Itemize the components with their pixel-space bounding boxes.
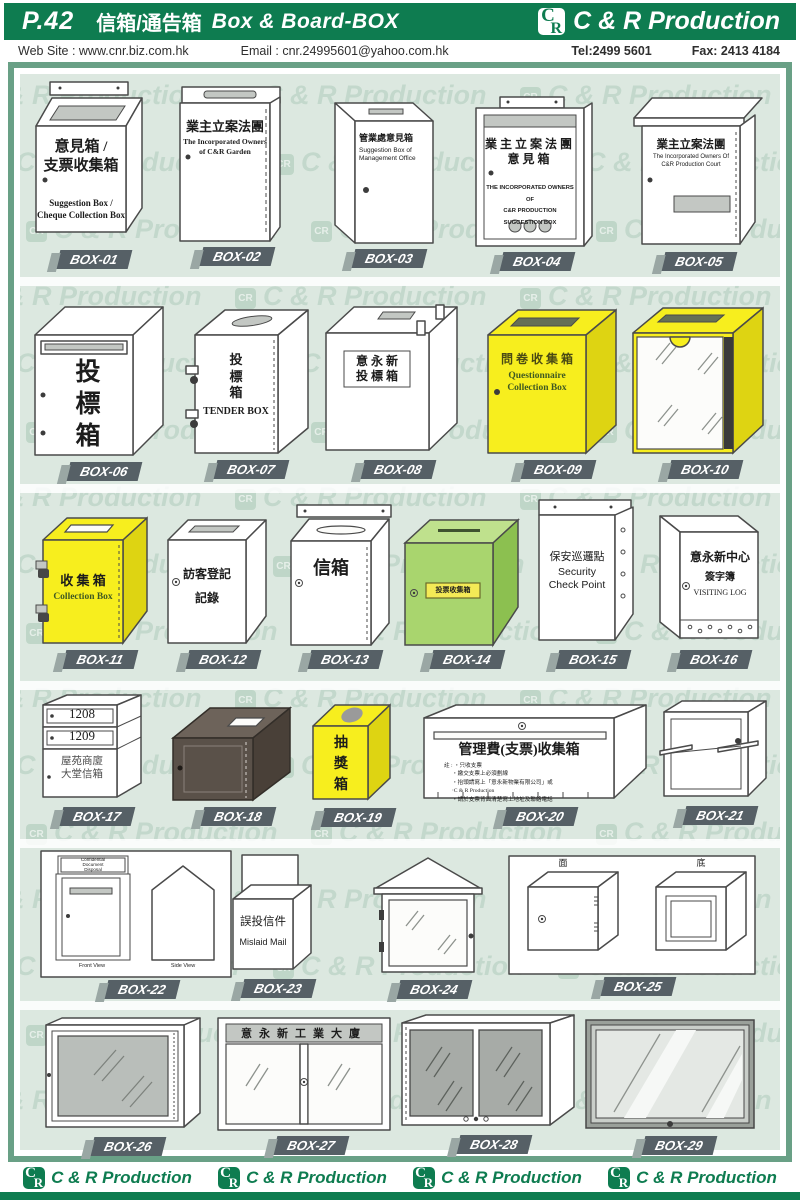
box-03-text-en: Suggestion Box ofManagement Office: [359, 147, 431, 164]
cr-logo-icon: CR: [218, 1167, 240, 1189]
box-02-tag: BOX-02: [198, 247, 275, 266]
product-box-15: 保安巡邏點 SecurityCheck Point BOX-15: [533, 498, 640, 648]
box-22-caption-front: Front View: [60, 963, 124, 970]
brand-name: C & R Production: [573, 7, 780, 36]
box-23-text-zh: 誤投信件: [233, 915, 293, 930]
box-18-illustration: [168, 700, 295, 805]
product-box-16: 意永新中心 簽字簿 VISITING LOG BOX-16: [652, 510, 764, 648]
box-27-header-text: 意永新工業大廈: [226, 1027, 382, 1041]
product-box-24: BOX-24: [372, 848, 484, 978]
product-box-03: 管業處意見箱 Suggestion Box ofManagement Offic…: [325, 95, 440, 247]
box-15-text-zh: 保安巡邏點: [541, 550, 613, 564]
box-20-title: 管理費(支票)收集箱: [428, 742, 610, 760]
box-24-tag: BOX-24: [396, 980, 473, 999]
box-04-tag: BOX-04: [498, 252, 575, 271]
box-07-text-zh: 投標箱: [218, 352, 254, 402]
bottom-green-bar: [0, 1192, 800, 1200]
box-19-tag: BOX-19: [320, 808, 397, 827]
box-21-tag: BOX-21: [682, 806, 759, 825]
product-box-20: 管理費(支票)收集箱 註 : ‧只收支票‧繳交支票上必須劃線 ‧抬頭請寫上「意永…: [418, 700, 650, 805]
box-03-tag: BOX-03: [350, 249, 427, 268]
box-29-tag: BOX-29: [641, 1136, 718, 1155]
footer-brand-3: CR C & R Production: [413, 1167, 582, 1189]
box-17-text-zh: 屋苑商廈大堂信箱: [49, 755, 115, 782]
box-17-tag: BOX-17: [59, 807, 136, 826]
box-11-text-zh: 收 集 箱: [45, 573, 121, 590]
catalog-page: P.42 信箱/通告箱 Box & Board-BOX CR C & R Pro…: [0, 0, 800, 1200]
box-27-tag: BOX-27: [273, 1136, 350, 1155]
product-box-09: 問 卷 收 集 箱 QuestionnaireCollection Box BO…: [483, 300, 620, 458]
product-box-01: 意見箱 /支票收集箱 Suggestion Box /Cheque Collec…: [28, 80, 148, 248]
product-box-18: BOX-18: [168, 700, 295, 805]
row-divider: [20, 681, 780, 690]
product-box-07: 投標箱 TENDER BOX BOX-07: [180, 300, 310, 458]
box-02-text-zh: 業主立案法團: [182, 119, 268, 136]
product-box-21: BOX-21: [658, 696, 770, 804]
box-23-tag: BOX-23: [240, 979, 317, 998]
fax-text: Fax: 2413 4184: [692, 44, 780, 58]
product-box-08: 意 永 新投 標 箱 BOX-08: [318, 293, 465, 458]
box-09-text-zh: 問 卷 收 集 箱: [491, 352, 583, 367]
box-23-text-en: Mislaid Mail: [233, 937, 293, 949]
box-15-tag: BOX-15: [554, 650, 631, 669]
website-text: Web Site : www.cnr.biz.com.hk: [18, 44, 189, 58]
cr-logo-icon: CR: [23, 1167, 45, 1189]
title-chinese: 信箱/通告箱: [96, 7, 202, 36]
box-14-illustration: [400, 505, 522, 648]
box-24-illustration: [372, 848, 484, 978]
row-divider: [20, 1001, 780, 1010]
box-07-tag: BOX-07: [213, 460, 290, 479]
product-box-19: 抽獎箱 BOX-19: [308, 696, 396, 806]
product-box-28: BOX-28: [398, 1013, 578, 1133]
box-26-illustration: [38, 1013, 206, 1135]
box-02-text-en: The Incorporated Ownersof C&R Garden: [182, 137, 268, 156]
box-29-illustration: [584, 1016, 762, 1134]
box-28-illustration: [398, 1013, 578, 1133]
box-17-unit-2: 1209: [57, 728, 107, 745]
box-05-tag: BOX-05: [661, 252, 738, 271]
box-17-unit-1: 1208: [57, 706, 107, 723]
box-09-text-en: QuestionnaireCollection Box: [491, 370, 583, 394]
box-05-text-zh: 業主立案法團: [648, 138, 734, 153]
box-01-text-zh: 意見箱 /支票收集箱: [38, 138, 124, 176]
footer-brand-row: CR C & R Production CR C & R Production …: [0, 1164, 800, 1192]
cr-logo-icon: CR: [538, 8, 565, 35]
box-01-text-en: Suggestion Box /Cheque Collection Box: [36, 198, 126, 221]
contact-strip: Web Site : www.cnr.biz.com.hk Email : cn…: [4, 40, 796, 62]
box-04-text-zh: 業主立案法團意見箱: [484, 137, 576, 168]
product-box-02: 業主立案法團 The Incorporated Ownersof C&R Gar…: [168, 85, 293, 245]
box-19-text-zh: 抽獎箱: [326, 732, 356, 795]
footer-brand-4: CR C & R Production: [608, 1167, 777, 1189]
box-20-notes: 註 : ‧只收支票‧繳交支票上必須劃線 ‧抬頭請寫上「意永新物業有限公司」或‧C…: [444, 762, 604, 804]
cr-logo-icon: CR: [413, 1167, 435, 1189]
box-06-tag: BOX-06: [65, 462, 142, 481]
box-15-text-en: SecurityCheck Point: [541, 566, 613, 593]
box-22-tag: BOX-22: [104, 980, 181, 999]
product-box-26: BOX-26: [38, 1013, 206, 1135]
box-10-illustration: [628, 298, 770, 458]
box-16-text-en: VISITING LOG: [684, 588, 756, 598]
box-11-tag: BOX-11: [62, 650, 139, 669]
box-25-label-bottom: 底: [676, 858, 726, 870]
product-box-17: 1208 1209 屋苑商廈大堂信箱 BOX-17: [35, 693, 147, 805]
box-12-text-zh: 訪客登記記錄: [171, 562, 243, 610]
title-english: Box & Board-BOX: [212, 10, 399, 34]
product-box-05: 業主立案法團 The Incorporated Owners OfC&R Pro…: [622, 88, 764, 250]
box-25-illustration: [508, 855, 756, 975]
box-13-text-zh: 信箱: [295, 557, 367, 580]
box-16-text-zh1: 意永新中心: [684, 550, 756, 565]
box-22-header: ConfidentialDocumentDisposal: [61, 858, 125, 872]
box-28-tag: BOX-28: [456, 1135, 533, 1154]
box-16-text-zh2: 簽字簿: [684, 572, 756, 585]
box-03-illustration: [325, 95, 440, 247]
box-20-tag: BOX-20: [502, 807, 579, 826]
product-box-29: BOX-29: [584, 1016, 762, 1134]
product-box-04: 業主立案法團意見箱 THE INCORPORATED OWNERS OFC&R …: [468, 95, 593, 250]
box-25-tag: BOX-25: [600, 977, 677, 996]
product-box-13: 信箱 BOX-13: [283, 503, 395, 648]
product-box-22: ConfidentialDocumentDisposal Front View …: [40, 850, 232, 978]
tel-text: Tel:2499 5601: [571, 44, 651, 58]
row-divider: [20, 839, 780, 848]
box-21-illustration: [658, 696, 770, 804]
footer-brand-2: CR C & R Production: [218, 1167, 387, 1189]
box-03-text-zh: 管業處意見箱: [359, 133, 431, 145]
box-08-tag: BOX-08: [359, 460, 436, 479]
box-13-tag: BOX-13: [307, 650, 384, 669]
cr-logo-icon: CR: [608, 1167, 630, 1189]
product-box-10: BOX-10: [628, 298, 770, 458]
box-05-text-en: The Incorporated Owners OfC&R Production…: [648, 154, 734, 169]
box-06-text-zh: 投標箱: [70, 357, 106, 453]
box-07-text-en: TENDER BOX: [192, 406, 280, 419]
box-10-tag: BOX-10: [667, 460, 744, 479]
box-14-tag: BOX-14: [429, 650, 506, 669]
box-18-tag: BOX-18: [199, 807, 276, 826]
product-box-06: 投標箱 BOX-06: [30, 295, 165, 460]
box-22-caption-side: Side View: [152, 963, 214, 970]
product-box-25: 面 底 BOX-25: [508, 855, 756, 975]
box-08-plaque-text: 意 永 新投 標 箱: [344, 354, 410, 385]
product-box-27: 意永新工業大廈 BOX-27: [216, 1016, 394, 1134]
box-09-tag: BOX-09: [519, 460, 596, 479]
product-box-12: 訪客登記記錄 BOX-12: [163, 510, 270, 648]
product-box-23: 誤投信件 Mislaid Mail BOX-23: [228, 853, 316, 977]
row-divider: [20, 484, 780, 493]
product-box-14: 投票收集箱 BOX-14: [400, 505, 522, 648]
box-12-tag: BOX-12: [184, 650, 261, 669]
box-25-label-front: 面: [538, 858, 588, 870]
footer-brand-1: CR C & R Production: [23, 1167, 192, 1189]
box-14-plaque-text: 投票收集箱: [426, 586, 480, 595]
box-04-text-en: THE INCORPORATED OWNERS OFC&R PRODUCTION…: [484, 183, 576, 229]
page-number: P.42: [22, 7, 74, 36]
box-26-tag: BOX-26: [90, 1137, 167, 1156]
box-02-illustration: [168, 85, 293, 245]
row-divider: [20, 277, 780, 286]
email-text: Email : cnr.24995601@yahoo.com.hk: [241, 44, 449, 58]
box-16-tag: BOX-16: [676, 650, 753, 669]
header-bar: P.42 信箱/通告箱 Box & Board-BOX CR C & R Pro…: [4, 3, 796, 40]
box-11-text-en: Collection Box: [43, 591, 123, 603]
box-01-tag: BOX-01: [56, 250, 133, 269]
product-box-11: 收 集 箱 Collection Box BOX-11: [35, 505, 153, 648]
